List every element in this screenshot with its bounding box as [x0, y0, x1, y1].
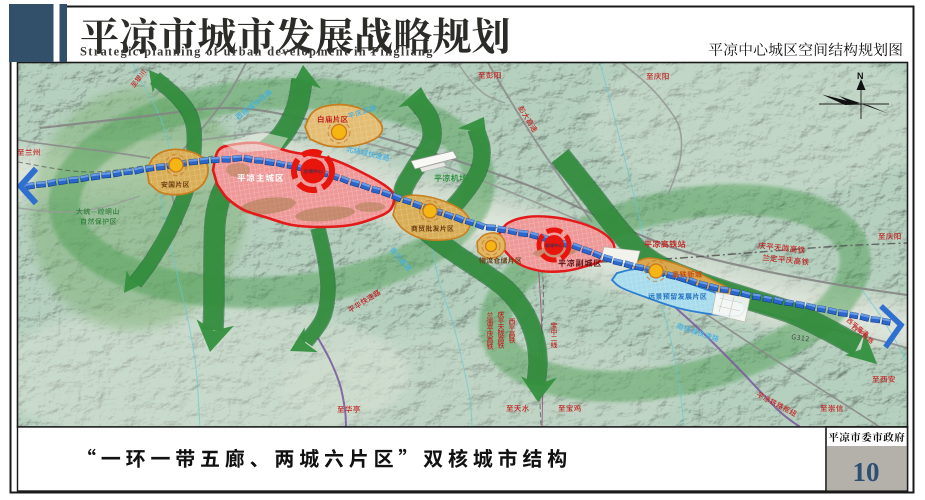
svg-text:Strategic planning of urban de: Strategic planning of urban development … [80, 45, 434, 59]
svg-text:N: N [857, 71, 864, 81]
svg-text:10: 10 [853, 457, 880, 487]
